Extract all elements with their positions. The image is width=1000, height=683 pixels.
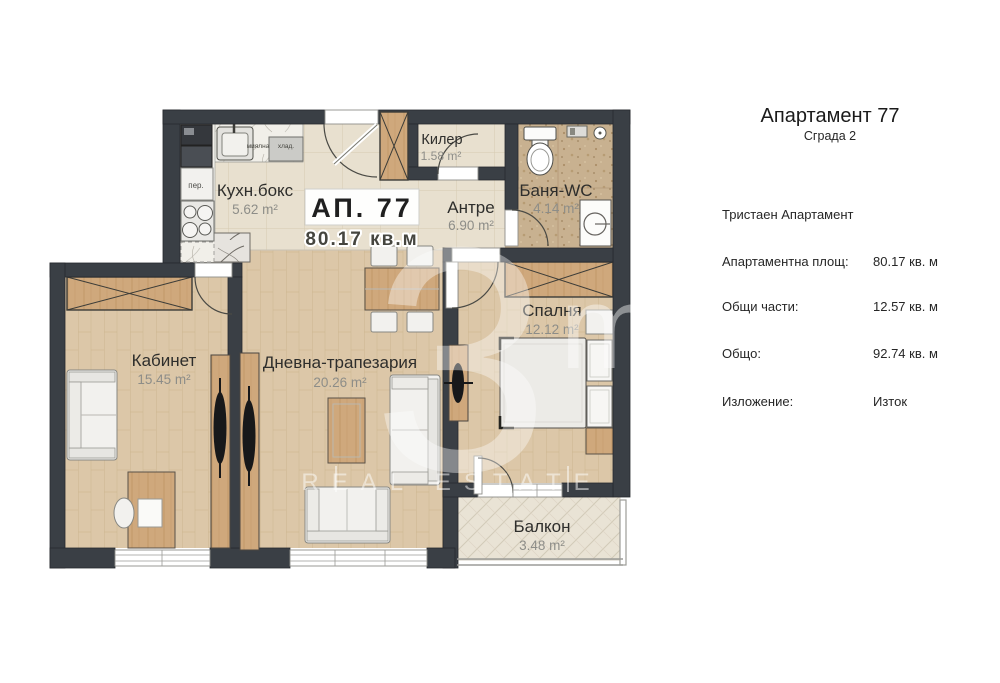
floor-plan: Кухн.бокс 5.62 m² Килер 1.58 m² Баня-WC … xyxy=(0,0,1000,683)
label-dishwasher: миялна xyxy=(247,143,270,150)
panel-handle xyxy=(214,392,227,464)
window-office xyxy=(115,550,210,566)
watermark-logo-mo: mo xyxy=(560,262,724,394)
window-living xyxy=(290,550,427,566)
room-area-living: 20.26 m² xyxy=(313,375,367,390)
room-area-kitchen: 5.62 m² xyxy=(232,202,278,217)
wall-left xyxy=(50,263,65,568)
wall-top-b xyxy=(378,110,630,124)
daybed-backrest xyxy=(69,382,81,448)
counter-dashed xyxy=(181,242,214,262)
toilet-tank xyxy=(524,127,556,140)
closet-door xyxy=(438,167,478,180)
watermark-caption: REAL ESTATE xyxy=(301,469,602,496)
label-fridge: хлад. xyxy=(278,143,294,150)
desk-paper xyxy=(138,499,162,527)
entrance-door-threshold xyxy=(325,110,378,124)
room-area-balcony: 3.48 m² xyxy=(519,538,565,553)
burner xyxy=(198,206,213,221)
washbasin-drain xyxy=(599,132,602,135)
window xyxy=(290,550,427,566)
burner xyxy=(183,223,198,238)
label-washer: пер. xyxy=(188,181,203,190)
panel-handle xyxy=(243,400,256,472)
wall-bottom-c xyxy=(427,548,455,568)
cabinet-detail xyxy=(184,128,194,135)
daybed-armrest xyxy=(69,448,115,458)
wall-office-top-b xyxy=(232,263,242,277)
wall-office-top-a xyxy=(50,263,195,277)
burner xyxy=(199,223,211,235)
room-area-closet: 1.58 m² xyxy=(421,149,462,163)
room-label-office: Кабинет xyxy=(132,351,197,370)
wall-kitchen-left xyxy=(163,110,180,263)
wall-top-a xyxy=(163,110,325,124)
wall-closet-bottom-a xyxy=(405,167,438,180)
kitchen-sink-basin xyxy=(222,133,248,156)
wall-bottom-b xyxy=(210,548,290,568)
desk-chair xyxy=(114,498,134,528)
screenshot-root: Кухн.бокс 5.62 m² Килер 1.58 m² Баня-WC … xyxy=(0,0,1000,683)
burner xyxy=(184,206,196,218)
room-label-kitchen: Кухн.бокс xyxy=(217,181,294,200)
daybed-armrest xyxy=(69,372,115,382)
bed-bench xyxy=(586,428,614,454)
coffee-table xyxy=(328,398,365,463)
room-label-closet: Килер xyxy=(421,132,462,148)
window xyxy=(115,550,210,566)
kitchen-tall-cabinet2 xyxy=(181,146,212,167)
room-area-office: 15.45 m² xyxy=(137,372,191,387)
bath-accessory-icon xyxy=(570,128,575,135)
office-door-threshold xyxy=(195,263,232,277)
wall-bottom-a xyxy=(50,548,115,568)
